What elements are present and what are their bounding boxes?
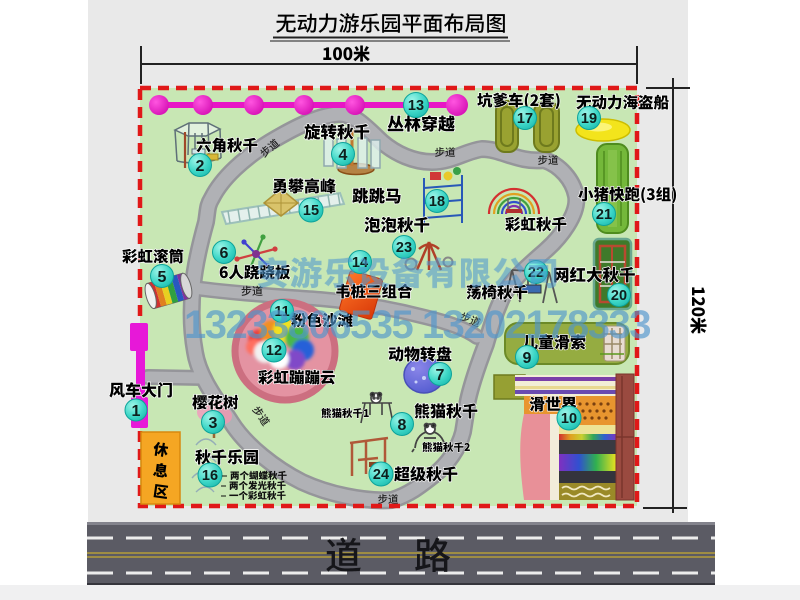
svg-text:17: 17 <box>517 111 533 127</box>
svg-text:4: 4 <box>339 147 348 164</box>
svg-text:16: 16 <box>202 468 218 484</box>
svg-text:9: 9 <box>523 350 532 367</box>
svg-text:8: 8 <box>398 417 407 434</box>
svg-text:3: 3 <box>209 415 218 432</box>
svg-text:23: 23 <box>396 240 412 256</box>
svg-text:19: 19 <box>581 111 597 127</box>
svg-text:13233806535 13202178333: 13233806535 13202178333 <box>184 303 650 347</box>
svg-text:21: 21 <box>596 207 612 223</box>
svg-text:13: 13 <box>408 98 424 114</box>
svg-text:2: 2 <box>196 158 205 175</box>
svg-text:10: 10 <box>561 411 577 427</box>
svg-text:15: 15 <box>303 203 319 219</box>
svg-text:20: 20 <box>611 288 627 304</box>
svg-text:5: 5 <box>158 269 167 286</box>
svg-text:6: 6 <box>220 245 229 262</box>
svg-text:18: 18 <box>429 194 445 210</box>
svg-text:24: 24 <box>373 467 389 483</box>
svg-text:7: 7 <box>436 367 445 384</box>
svg-text:1: 1 <box>132 403 141 420</box>
